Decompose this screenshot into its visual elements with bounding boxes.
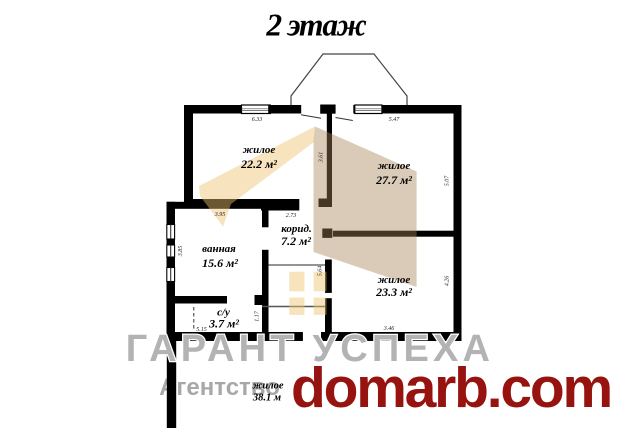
- svg-text:2 этаж: 2 этаж: [265, 8, 367, 43]
- svg-text:15.6 м²: 15.6 м²: [202, 256, 238, 270]
- svg-text:3.61: 3.61: [319, 152, 325, 164]
- svg-text:жилое: жилое: [243, 144, 276, 156]
- svg-text:1.17: 1.17: [255, 310, 261, 322]
- svg-text:domarb.com: domarb.com: [291, 356, 611, 420]
- svg-text:жилое: жилое: [252, 381, 283, 392]
- svg-text:5.07: 5.07: [445, 175, 451, 187]
- svg-text:23.3 м²: 23.3 м²: [375, 285, 412, 299]
- svg-text:7.2 м²: 7.2 м²: [281, 234, 311, 248]
- svg-text:27.7 м²: 27.7 м²: [375, 173, 412, 187]
- svg-text:5.64: 5.64: [317, 266, 324, 277]
- svg-text:2.73: 2.73: [286, 213, 297, 219]
- svg-text:4.26: 4.26: [444, 276, 451, 287]
- svg-text:жилое: жилое: [378, 160, 411, 172]
- svg-text:22.2 м²: 22.2 м²: [240, 157, 277, 171]
- svg-text:5.47: 5.47: [389, 116, 401, 123]
- svg-text:38.1 м: 38.1 м: [252, 393, 281, 404]
- svg-text:ванная: ванная: [202, 243, 236, 255]
- svg-text:3.95: 3.95: [214, 212, 226, 218]
- svg-text:3.85: 3.85: [178, 246, 184, 258]
- svg-text:6.33: 6.33: [252, 117, 263, 123]
